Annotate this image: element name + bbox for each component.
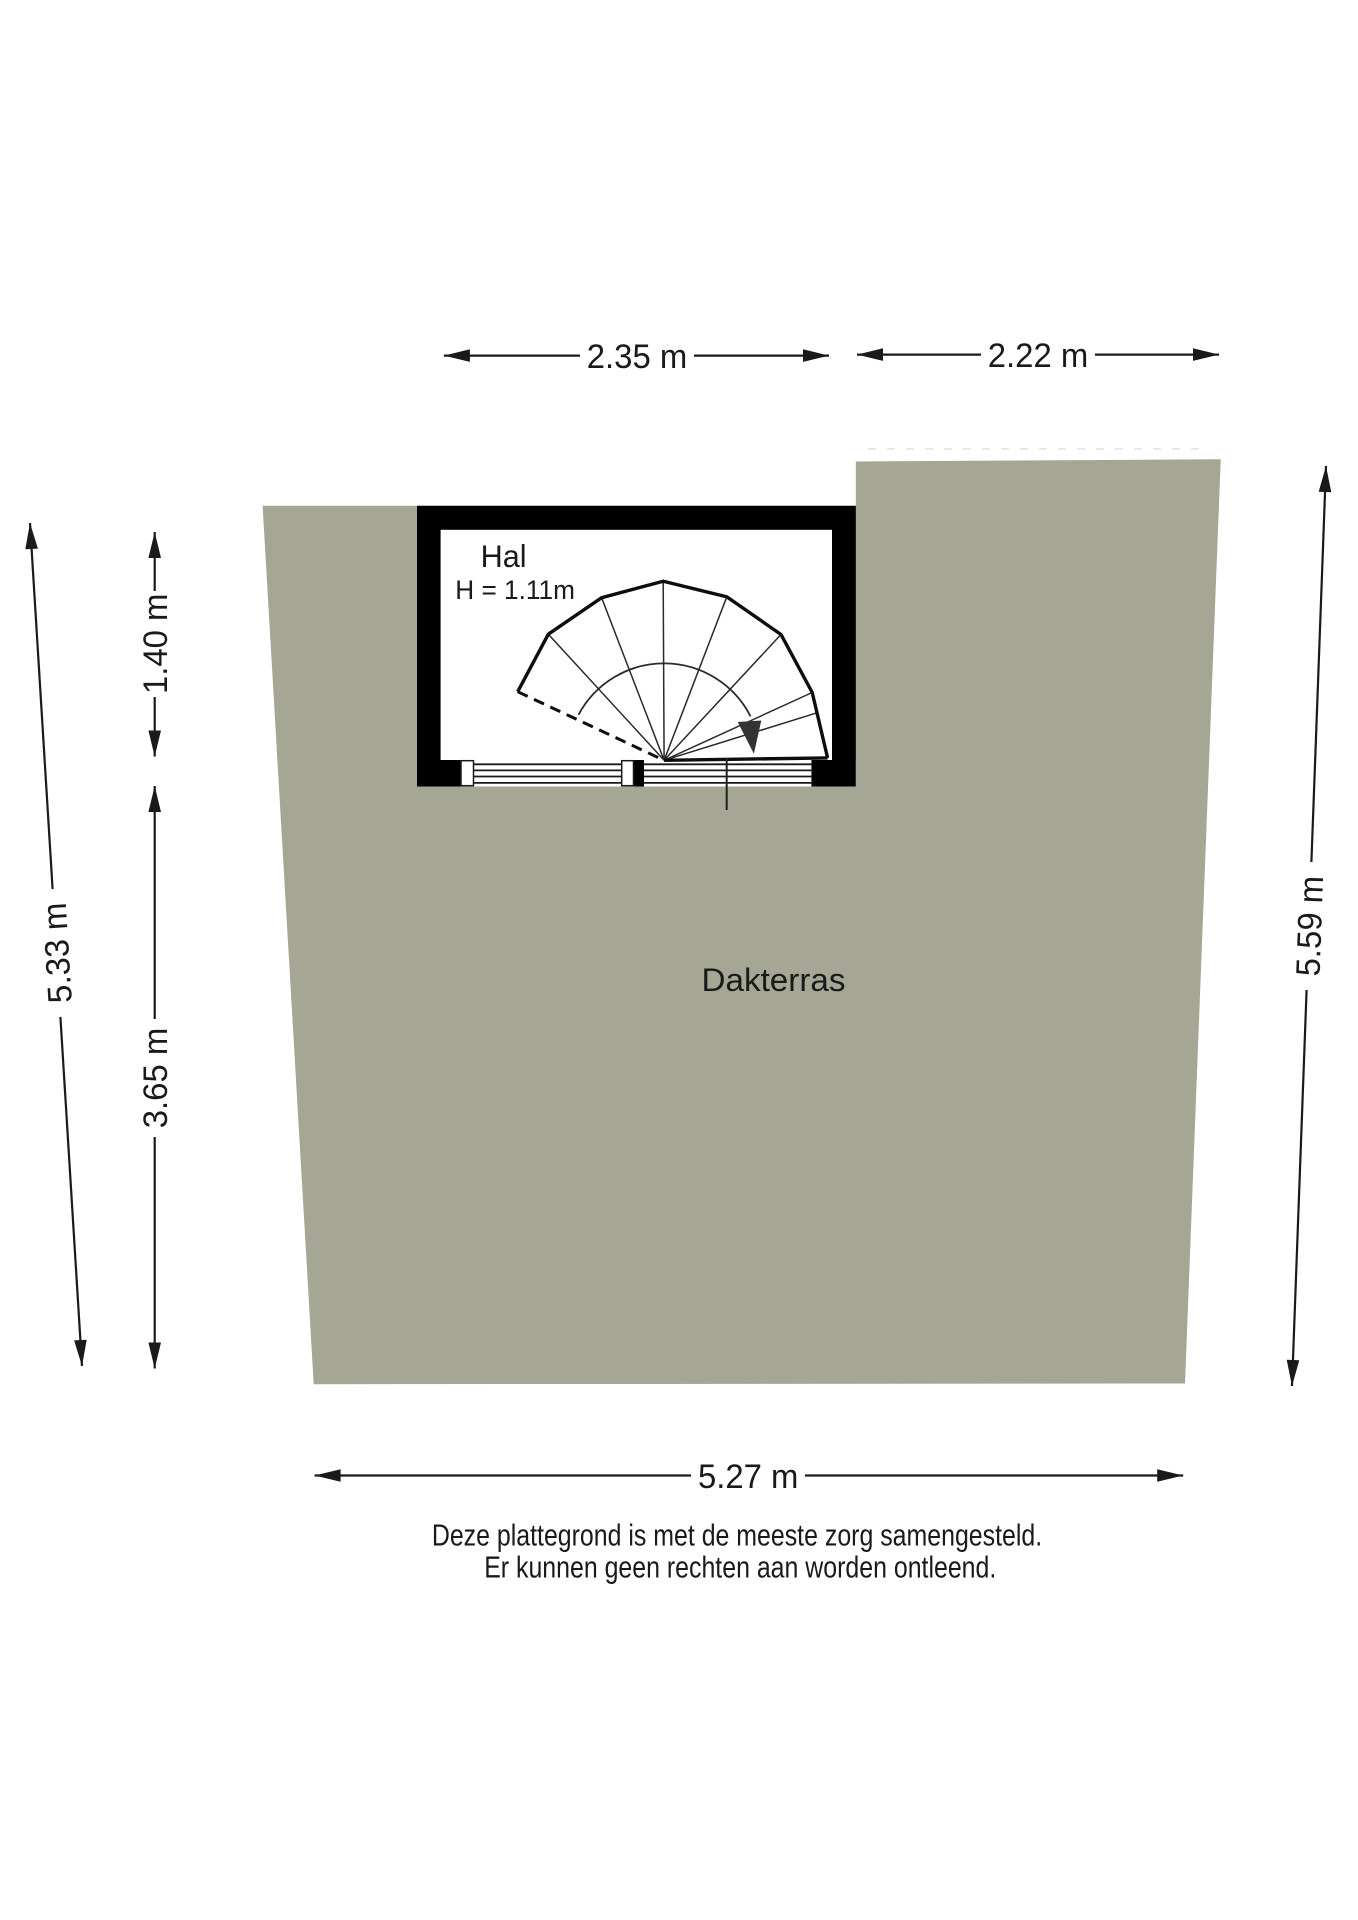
svg-text:5.33 m: 5.33 m xyxy=(36,902,80,1005)
svg-text:Er kunnen geen rechten aan wor: Er kunnen geen rechten aan worden ontlee… xyxy=(484,1550,996,1584)
svg-text:1.40 m: 1.40 m xyxy=(137,594,175,695)
svg-text:5.27 m: 5.27 m xyxy=(698,1458,799,1496)
svg-text:H = 1.11m: H = 1.11m xyxy=(455,575,575,605)
svg-text:Dakterras: Dakterras xyxy=(702,962,846,998)
svg-text:Hal: Hal xyxy=(481,538,527,574)
svg-text:3.65 m: 3.65 m xyxy=(137,1028,175,1129)
svg-text:5.59 m: 5.59 m xyxy=(1289,875,1331,977)
svg-text:2.35 m: 2.35 m xyxy=(587,338,688,376)
svg-text:Deze plattegrond is met de mee: Deze plattegrond is met de meeste zorg s… xyxy=(432,1518,1042,1552)
svg-text:2.22 m: 2.22 m xyxy=(988,337,1089,375)
